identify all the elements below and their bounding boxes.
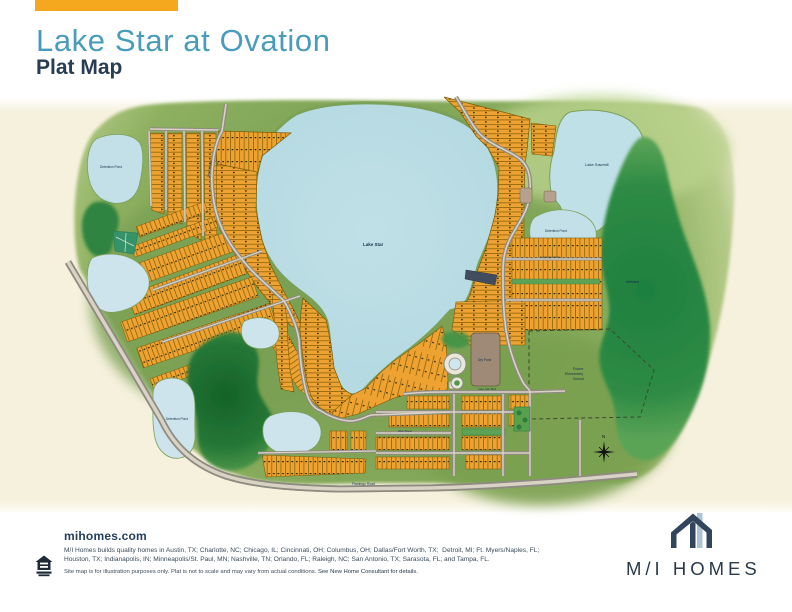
svg-text:Web Street: Web Street [398, 429, 412, 433]
svg-text:Lake Star: Lake Star [363, 242, 384, 247]
svg-text:Lake Star Blvd: Lake Star Blvd [478, 387, 497, 391]
svg-text:Huntington Drive: Huntington Drive [540, 255, 561, 259]
svg-text:Detention Pond: Detention Pond [545, 229, 567, 233]
svg-text:Wetland: Wetland [626, 280, 639, 284]
svg-text:Future: Future [573, 367, 583, 371]
svg-text:Detention Pond: Detention Pond [100, 165, 122, 169]
svg-text:N: N [602, 434, 605, 439]
svg-text:Flamingo Road: Flamingo Road [352, 482, 375, 486]
svg-text:School: School [573, 377, 584, 381]
svg-text:M/I HOMES: M/I HOMES [626, 558, 761, 579]
svg-text:Lake Sawmill: Lake Sawmill [585, 162, 609, 167]
svg-text:Detention Pond: Detention Pond [166, 417, 188, 421]
svg-text:Dry Pond: Dry Pond [478, 358, 492, 362]
svg-text:Elementary: Elementary [565, 372, 583, 376]
